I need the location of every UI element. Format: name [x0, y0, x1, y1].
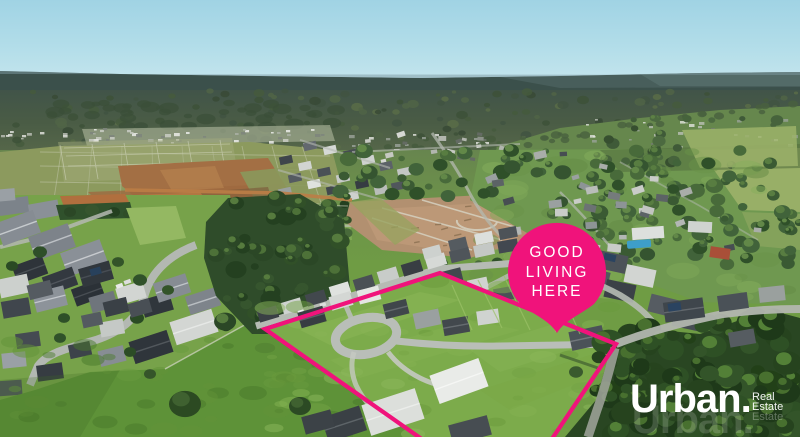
- svg-text:HERE: HERE: [531, 283, 582, 300]
- svg-text:Urban.: Urban.: [630, 377, 751, 421]
- svg-text:GOOD: GOOD: [529, 244, 584, 261]
- svg-text:Estate: Estate: [752, 411, 783, 423]
- svg-text:LIVING: LIVING: [526, 264, 589, 281]
